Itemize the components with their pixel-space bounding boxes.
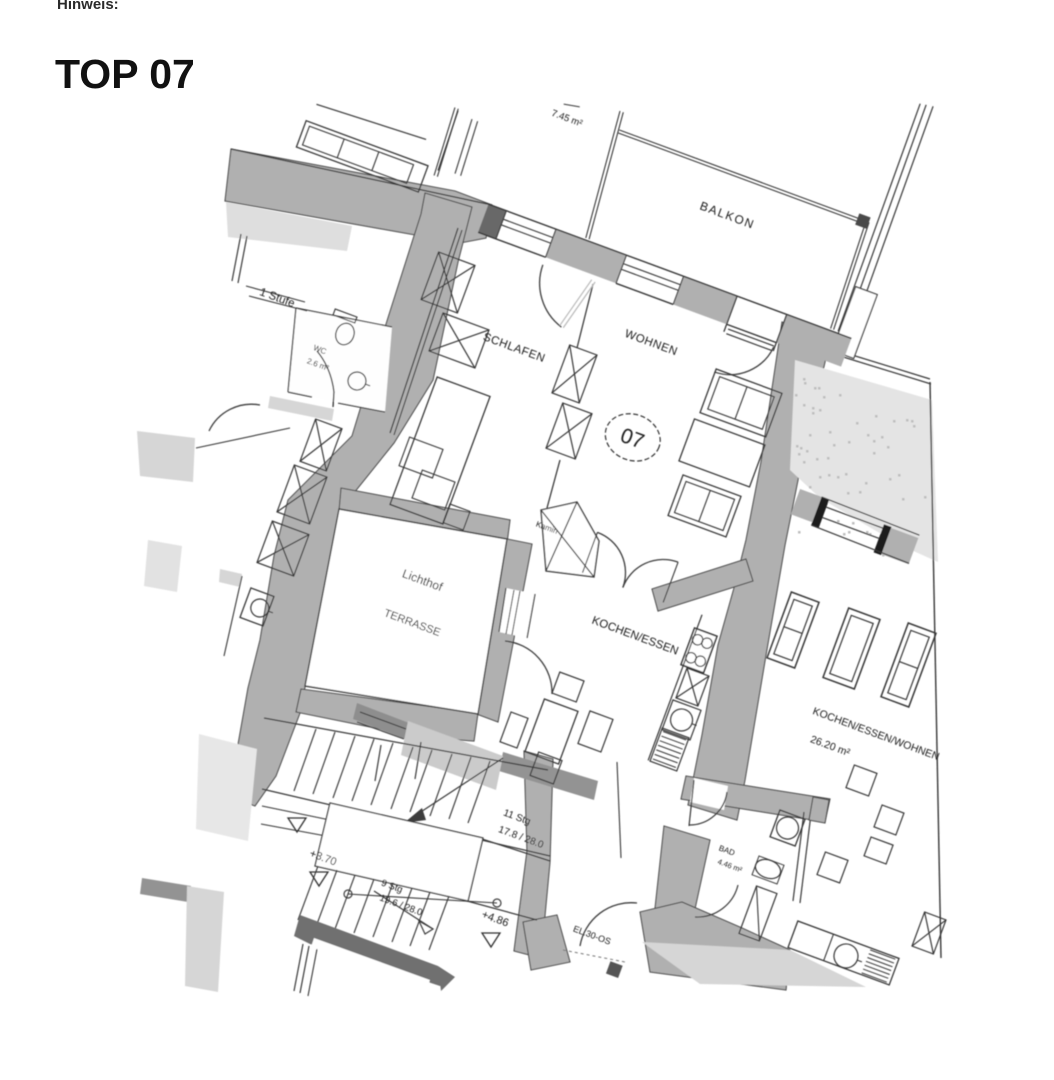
svg-text:WOHNEN: WOHNEN	[623, 328, 679, 358]
svg-text:KOCHEN/ESSEN/WOHNEN: KOCHEN/ESSEN/WOHNEN	[811, 705, 941, 763]
svg-text:EL.30-OS: EL.30-OS	[572, 924, 613, 947]
svg-text:BALKON: BALKON	[698, 199, 757, 232]
svg-text:1 Stufe: 1 Stufe	[258, 286, 296, 310]
svg-text:26.20 m²: 26.20 m²	[809, 733, 852, 759]
svg-text:4.46 m²: 4.46 m²	[716, 857, 743, 874]
svg-text:BAD: BAD	[718, 844, 737, 858]
svg-text:KOCHEN/ESSEN: KOCHEN/ESSEN	[590, 615, 680, 658]
svg-text:7.45 m²: 7.45 m²	[550, 108, 584, 129]
svg-text:07: 07	[617, 424, 647, 454]
svg-text:SCHLAFEN: SCHLAFEN	[481, 331, 546, 365]
